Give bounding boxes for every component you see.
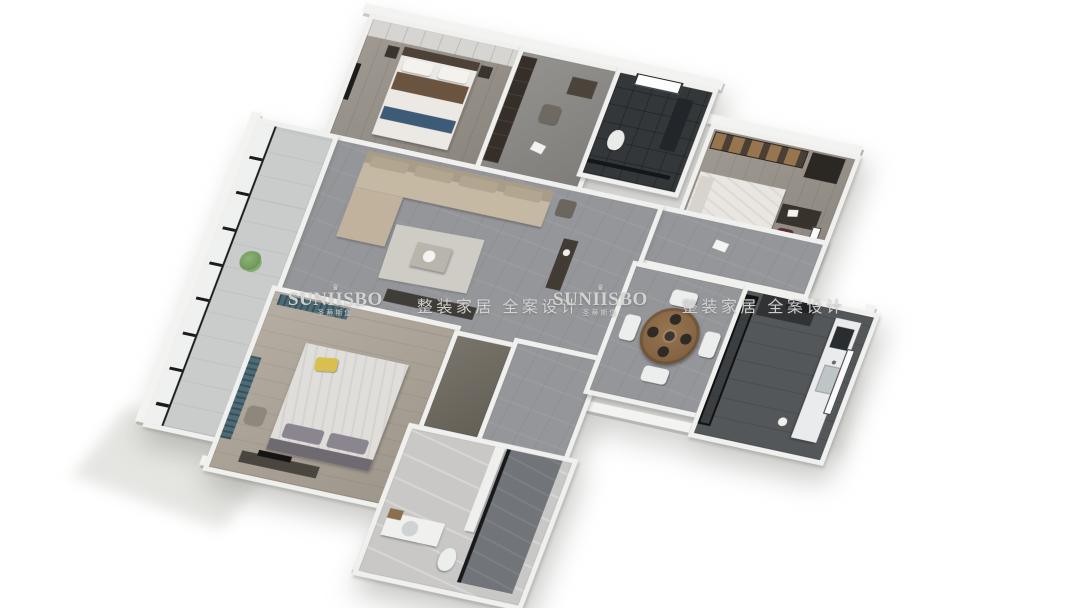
paper-on-floor (712, 239, 729, 252)
tv-panel (343, 63, 362, 100)
nightstand (477, 65, 493, 79)
wardrobe-dark (803, 152, 845, 184)
brand-name: SUNIISBO (553, 291, 648, 309)
plate (679, 333, 694, 346)
dining-chair (639, 365, 670, 386)
console-cabinet (545, 238, 578, 291)
toilet (435, 546, 460, 572)
paper-on-desk (787, 210, 798, 217)
kettle (777, 417, 789, 427)
watermark: ♛ SUNIISBO 圣蒂斯堡 整装家居 全案设计 (553, 284, 845, 317)
watermark: ♛ SUNIISBO 圣蒂斯堡 整装家居 全案设计 (288, 284, 580, 317)
toilet (604, 128, 627, 151)
bed-runner-blue (380, 106, 456, 134)
centerpiece (663, 330, 676, 342)
brand-name-chinese: 圣蒂斯堡 (553, 309, 648, 317)
plate (646, 326, 661, 339)
bed (372, 47, 481, 151)
brand-block: ♛ SUNIISBO 圣蒂斯堡 (553, 284, 648, 317)
side-table (554, 198, 578, 219)
shower-glass (587, 158, 671, 180)
brand-tagline: 整装家居 全案设计 (682, 293, 846, 317)
brand-block: ♛ SUNIISBO 圣蒂斯堡 (288, 284, 383, 317)
nightstand (384, 45, 400, 59)
bath-vanity-dark (659, 97, 694, 152)
vanity-desk (566, 77, 598, 100)
brand-name-chinese: 圣蒂斯堡 (288, 309, 383, 317)
paper-on-floor (530, 141, 546, 154)
render-canvas: ♛ SUNIISBO 圣蒂斯堡 整装家居 全案设计 ♛ SUNIISBO 圣蒂斯… (0, 0, 1080, 608)
brand-name: SUNIISBO (288, 291, 383, 309)
bed-master (266, 343, 409, 472)
plate (656, 345, 671, 358)
chair (537, 103, 562, 125)
pillow-yellow (314, 357, 339, 372)
armchair (242, 404, 269, 427)
plant (237, 249, 264, 272)
